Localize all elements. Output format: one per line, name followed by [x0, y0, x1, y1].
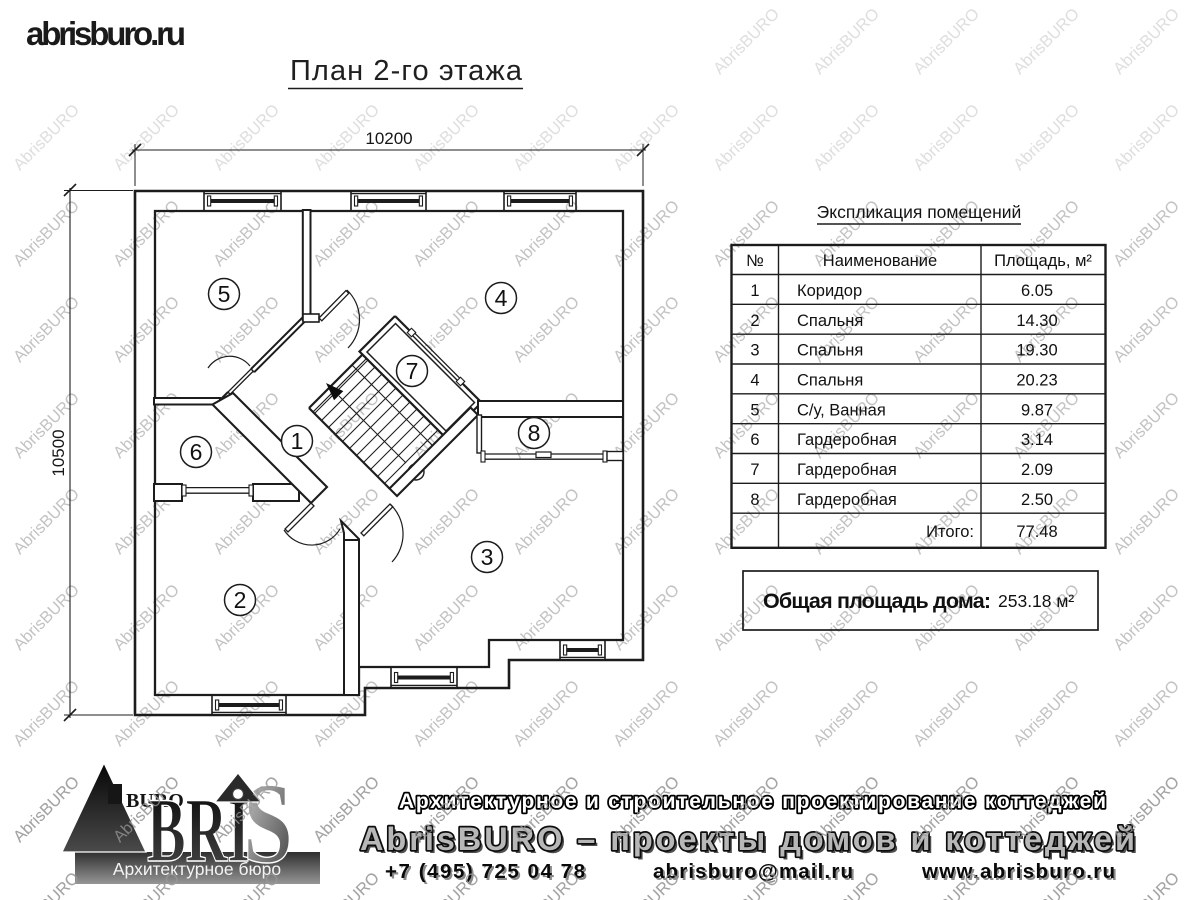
svg-text:253.18 м²: 253.18 м² — [998, 591, 1074, 611]
svg-text:10500: 10500 — [49, 429, 68, 476]
svg-text:Гардеробная: Гардеробная — [797, 431, 897, 449]
svg-text:Экспликация помещений: Экспликация помещений — [817, 202, 1022, 222]
svg-text:www.abrisburo.ru: www.abrisburo.ru — [921, 860, 1115, 883]
svg-text:2: 2 — [234, 587, 247, 613]
svg-text:abrisburo.ru: abrisburo.ru — [26, 15, 186, 52]
svg-text:7: 7 — [750, 461, 759, 479]
svg-text:6: 6 — [190, 439, 203, 465]
svg-text:3: 3 — [750, 342, 759, 360]
svg-text:19.30: 19.30 — [1016, 342, 1057, 360]
svg-text:10200: 10200 — [365, 129, 412, 148]
svg-text:8: 8 — [528, 420, 541, 446]
svg-text:План 2-го этажа: План 2-го этажа — [290, 55, 523, 87]
svg-text:Гардеробная: Гардеробная — [797, 491, 897, 509]
svg-text:5: 5 — [218, 281, 231, 307]
svg-text:6: 6 — [750, 431, 759, 449]
svg-text:14.30: 14.30 — [1016, 312, 1057, 330]
svg-text:4: 4 — [750, 372, 759, 390]
svg-text:Коридор: Коридор — [797, 282, 862, 300]
svg-text:+7 (495) 725 04 78: +7 (495) 725 04 78 — [385, 860, 585, 883]
svg-text:Спальня: Спальня — [797, 342, 863, 360]
svg-text:2: 2 — [750, 312, 759, 330]
svg-text:3.14: 3.14 — [1021, 431, 1053, 449]
svg-text:8: 8 — [750, 491, 759, 509]
svg-text:Общая площадь дома:: Общая площадь дома: — [763, 589, 991, 613]
svg-text:2.09: 2.09 — [1021, 461, 1053, 479]
svg-text:Площадь, м²: Площадь, м² — [994, 252, 1092, 270]
svg-text:1: 1 — [750, 282, 759, 300]
svg-text:С/у, Ванная: С/у, Ванная — [797, 401, 886, 419]
svg-text:Наименование: Наименование — [823, 252, 937, 270]
svg-text:5: 5 — [750, 401, 759, 419]
svg-text:abrisburo@mail.ru: abrisburo@mail.ru — [653, 860, 853, 883]
svg-text:3: 3 — [481, 544, 494, 570]
svg-text:№: № — [746, 252, 764, 270]
svg-text:Спальня: Спальня — [797, 372, 863, 390]
svg-text:6.05: 6.05 — [1021, 282, 1053, 300]
svg-text:7: 7 — [406, 358, 419, 384]
svg-text:Спальня: Спальня — [797, 312, 863, 330]
svg-text:4: 4 — [495, 285, 508, 311]
svg-text:20.23: 20.23 — [1016, 372, 1057, 390]
svg-text:9.87: 9.87 — [1021, 401, 1053, 419]
svg-text:1: 1 — [291, 428, 304, 454]
svg-text:Гардеробная: Гардеробная — [797, 461, 897, 479]
svg-text:2.50: 2.50 — [1021, 491, 1053, 509]
svg-text:77.48: 77.48 — [1016, 523, 1057, 541]
svg-text:Итого:: Итого: — [926, 523, 974, 541]
